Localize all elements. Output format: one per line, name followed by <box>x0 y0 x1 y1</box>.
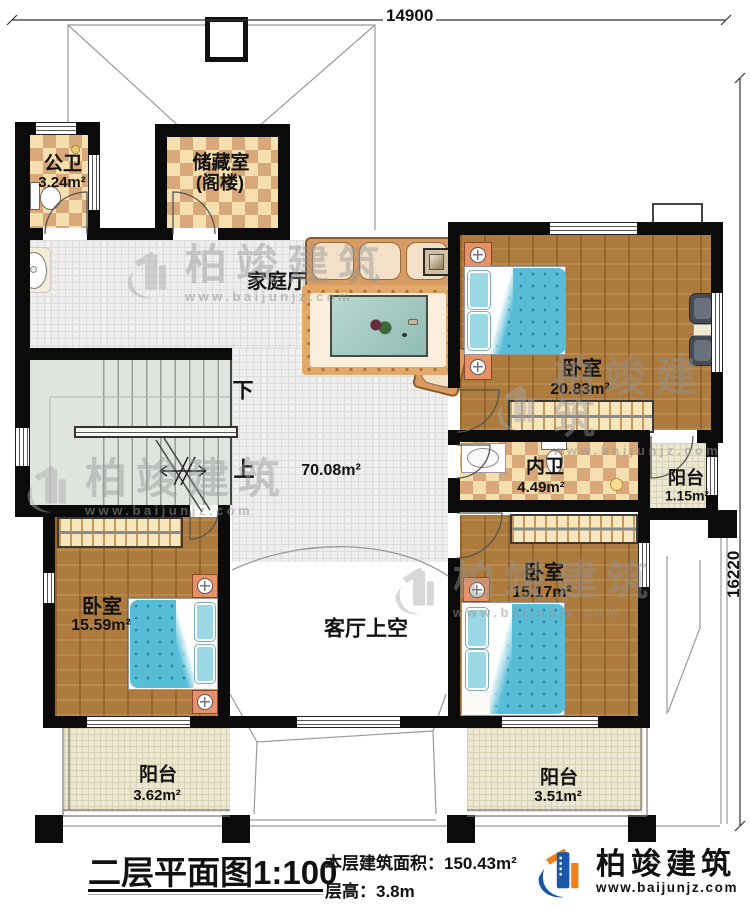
brand-logo-icon <box>537 842 591 902</box>
room-label-bedroom-bottom: 卧室 <box>524 562 564 584</box>
room-area-balcony-left: 3.62m² <box>133 788 181 805</box>
plan-title: 二层平面图 <box>88 846 253 894</box>
dimension-right: 16220 <box>724 548 744 601</box>
room-label-bedroom-right: 卧室 <box>562 358 602 380</box>
floor-area-label: 本层建筑面积： <box>325 854 444 873</box>
room-area-ensuite-bath: 4.49m² <box>517 480 565 497</box>
room-area-bedroom-bottom: 15.17m² <box>512 584 572 602</box>
room-label-family-hall: 家庭厅 <box>247 271 307 293</box>
floor-height-value: 3.8m <box>376 882 415 901</box>
floor-height-row: 层高：3.8m <box>325 877 415 902</box>
room-label-ensuite-bath: 内卫 <box>526 458 564 479</box>
stair-down-label: 下 <box>233 379 254 402</box>
floor-area-value: 150.43m² <box>444 854 517 873</box>
floor-area-row: 本层建筑面积：150.43m² <box>325 849 517 874</box>
room-label-balcony-small: 阳台 <box>668 469 704 489</box>
room-area-public-bath: 3.24m² <box>38 175 86 192</box>
room-area-balcony-small: 1.15m² <box>665 488 709 503</box>
brand-website: www.baijunjz.com <box>596 880 738 895</box>
title-underline <box>88 889 323 892</box>
doors-and-detail-lines <box>0 0 750 907</box>
floor-height-label: 层高： <box>325 882 376 901</box>
brand-name: 柏竣建筑 <box>596 849 738 881</box>
plan-title-row: 二层平面图 1:100 <box>88 846 337 894</box>
room-label-public-bath: 公卫 <box>44 155 82 176</box>
dimension-top: 14900 <box>383 6 436 26</box>
title-underline-thin <box>88 894 323 895</box>
room-area-bedroom-left: 15.59m² <box>71 617 131 635</box>
room-label-balcony-left: 阳台 <box>139 766 177 787</box>
brand-block: 柏竣建筑 www.baijunjz.com <box>537 842 738 902</box>
room-sublabel-storage: (阁楼) <box>196 174 244 194</box>
room-area-balcony-right: 3.51m² <box>534 789 582 806</box>
room-area-family-hall: 70.08m² <box>301 462 361 480</box>
room-area-bedroom-right: 20.83m² <box>550 381 610 399</box>
stair-up-label: 上 <box>234 458 255 481</box>
room-label-bedroom-left: 卧室 <box>82 596 122 618</box>
room-label-living-void: 客厅上空 <box>324 617 408 640</box>
room-label-storage: 储藏室 <box>192 154 249 175</box>
room-label-balcony-right: 阳台 <box>540 769 578 790</box>
floor-plan: 公卫 3.24m² 储藏室 (阁楼) 家庭厅 70.08m² 卧室 20.83m… <box>0 0 750 907</box>
